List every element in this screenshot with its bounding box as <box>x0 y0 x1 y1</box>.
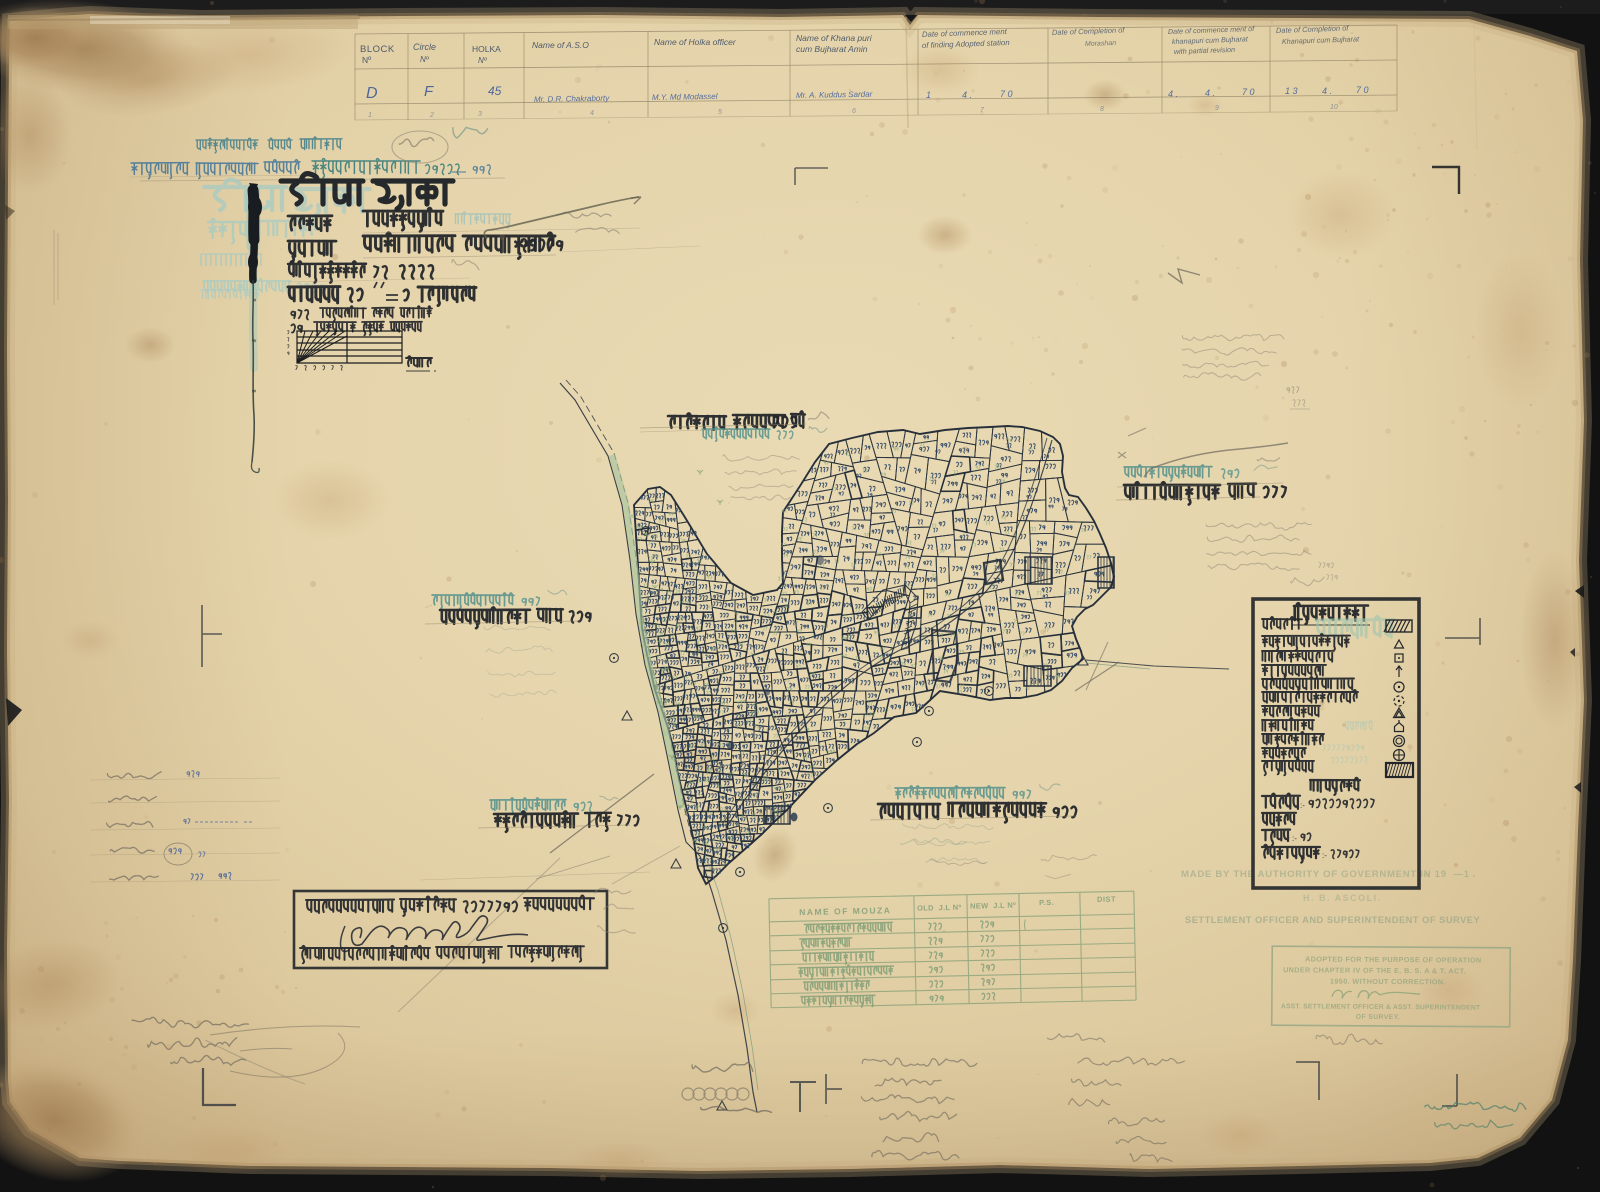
svg-text:Nº: Nº <box>478 56 488 65</box>
svg-text:4 .: 4 . <box>1322 86 1332 96</box>
svg-text:Morashan: Morashan <box>1085 40 1116 48</box>
svg-text:Name of Holka officer: Name of Holka officer <box>654 37 737 47</box>
svg-text:MADE BY THE AUTHORITY OF GOVER: MADE BY THE AUTHORITY OF GOVERNMENT IN 1… <box>1181 869 1476 880</box>
svg-text:cum Bujharat Amin: cum Bujharat Amin <box>796 44 868 54</box>
svg-text:4 .: 4 . <box>1168 89 1178 99</box>
svg-text:Mr. A. Kuddus Sardar: Mr. A. Kuddus Sardar <box>796 90 873 100</box>
svg-text:D: D <box>366 85 378 102</box>
svg-text:4 .: 4 . <box>1205 88 1215 98</box>
svg-text:7 0: 7 0 <box>1356 85 1369 95</box>
svg-text:P.S.: P.S. <box>1039 898 1054 907</box>
svg-text:Mr. D.R. Chakraborty: Mr. D.R. Chakraborty <box>534 94 610 104</box>
svg-text:1: 1 <box>926 90 931 100</box>
svg-text:3: 3 <box>478 111 482 118</box>
svg-text:BLOCK: BLOCK <box>360 44 395 55</box>
svg-text:7 0: 7 0 <box>1242 87 1255 97</box>
svg-text:SETTLEMENT OFFICER AND SUPERIN: SETTLEMENT OFFICER AND SUPERINTENDENT OF… <box>1185 915 1480 925</box>
svg-text:8: 8 <box>1100 106 1104 113</box>
svg-text:9: 9 <box>1215 105 1219 112</box>
svg-text:OF SURVEY.: OF SURVEY. <box>1356 1014 1400 1021</box>
svg-text:1950. WITHOUT CORRECTION.: 1950. WITHOUT CORRECTION. <box>1330 977 1446 987</box>
svg-text:OLD J.L Nº: OLD J.L Nº <box>917 903 962 913</box>
svg-text:Name of Khana puri: Name of Khana puri <box>796 33 873 43</box>
svg-text:4 .: 4 . <box>962 90 972 100</box>
svg-text:5: 5 <box>718 109 722 116</box>
svg-text:DIST: DIST <box>1097 895 1116 904</box>
svg-text::-: :- <box>1322 851 1327 860</box>
svg-text:UNDER CHAPTER IV OF THE E. B.: UNDER CHAPTER IV OF THE E. B. S. A & T. … <box>1283 965 1466 975</box>
svg-text:NAME OF MOUZA: NAME OF MOUZA <box>799 905 891 917</box>
svg-text:H. B. ASCOLI.: H. B. ASCOLI. <box>1303 893 1382 903</box>
svg-text:NEW J.L Nº: NEW J.L Nº <box>970 901 1016 911</box>
svg-text:2: 2 <box>429 112 434 119</box>
svg-text:M.Y. Md Modassel: M.Y. Md Modassel <box>652 92 718 102</box>
svg-text:Nº: Nº <box>420 55 430 64</box>
svg-text:1 3: 1 3 <box>1285 86 1298 96</box>
svg-text:1: 1 <box>368 112 372 119</box>
svg-text:6: 6 <box>852 108 856 115</box>
svg-text:HOLKA: HOLKA <box>472 44 501 54</box>
svg-text:F: F <box>424 83 434 100</box>
svg-text:7 0: 7 0 <box>1000 89 1013 99</box>
svg-text:45: 45 <box>488 84 502 98</box>
svg-text:ASST. SETTLEMENT OFFICER & ASS: ASST. SETTLEMENT OFFICER & ASST. SUPERIN… <box>1281 1003 1481 1011</box>
svg-text:4: 4 <box>590 110 594 117</box>
svg-text:ADOPTED FOR THE PURPOSE OF OPE: ADOPTED FOR THE PURPOSE OF OPERATION <box>1305 954 1481 964</box>
svg-text::-: :- <box>1292 834 1297 843</box>
svg-text:Name of A.S.O: Name of A.S.O <box>532 40 589 50</box>
svg-text::-: :- <box>1300 801 1305 810</box>
svg-text:Nº: Nº <box>362 55 371 65</box>
svg-text:10: 10 <box>1330 104 1338 111</box>
svg-text:Circle: Circle <box>413 42 436 52</box>
